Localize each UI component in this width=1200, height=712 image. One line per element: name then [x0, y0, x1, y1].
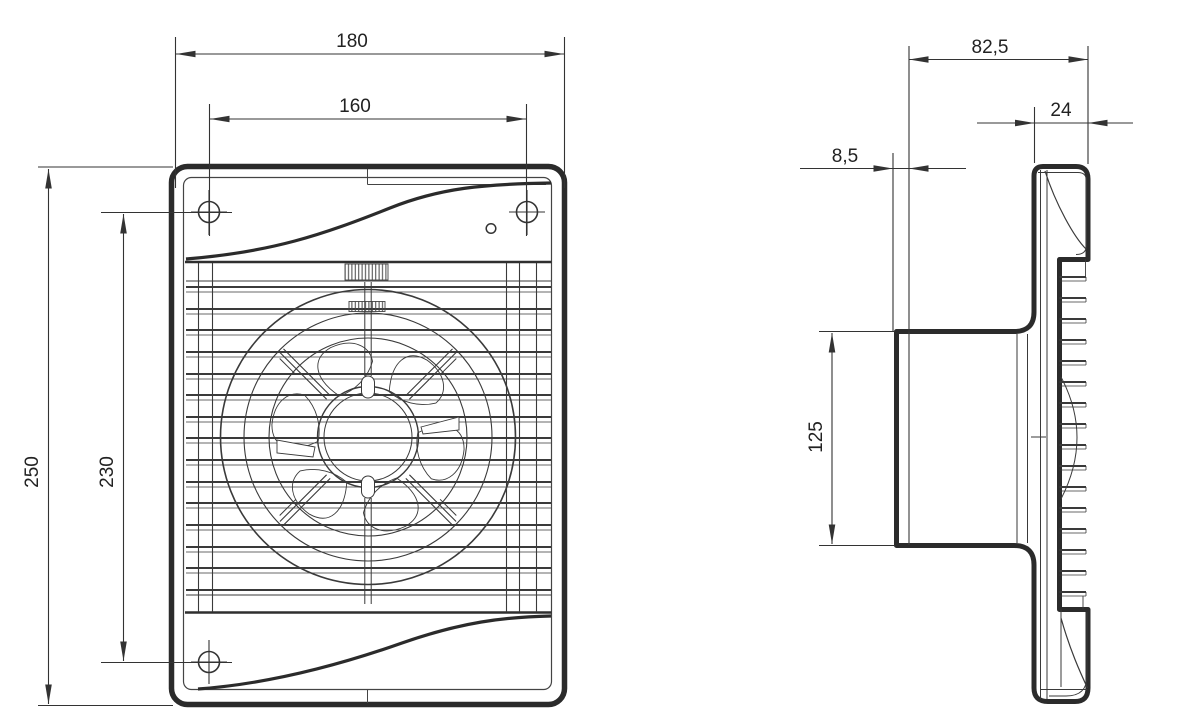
dimension-flange-8-5: 8,5: [800, 146, 966, 332]
dimension-height-250: 250: [22, 167, 173, 706]
dimension-duct-125: 125: [806, 332, 895, 546]
shutter-slider-grip-top: [345, 264, 388, 280]
extension-lines: [38, 167, 173, 706]
side-louver-slats-main: [1060, 277, 1087, 592]
dimension-panel-24: 24: [977, 100, 1133, 163]
front-panel-outline: [172, 167, 565, 705]
dimension-label-125: 125: [806, 421, 827, 453]
dimension-label-8-5: 8,5: [832, 146, 858, 167]
side-louver-slats-shadow: [1060, 277, 1087, 596]
side-silhouette: [897, 167, 1089, 702]
dimension-label-24: 24: [1050, 100, 1072, 121]
dimension-label-230: 230: [97, 456, 118, 488]
front-panel: [172, 167, 565, 705]
extension-lines: [819, 332, 895, 546]
dimension-label-250: 250: [22, 456, 43, 488]
fan-arc-behind-louvers: [1061, 377, 1077, 499]
front-view: 180 160 250 230: [22, 31, 565, 706]
technical-drawing-page: 180 160 250 230: [0, 0, 1200, 712]
fan-technical-drawing: 180 160 250 230: [0, 0, 1200, 712]
dimension-label-180: 180: [336, 31, 368, 52]
shutter-slider-grip-second: [349, 302, 385, 312]
dimension-label-82-5: 82,5: [972, 37, 1009, 58]
side-view: 82,5 24 8,5 125: [800, 37, 1133, 702]
dimension-label-160: 160: [339, 96, 371, 117]
